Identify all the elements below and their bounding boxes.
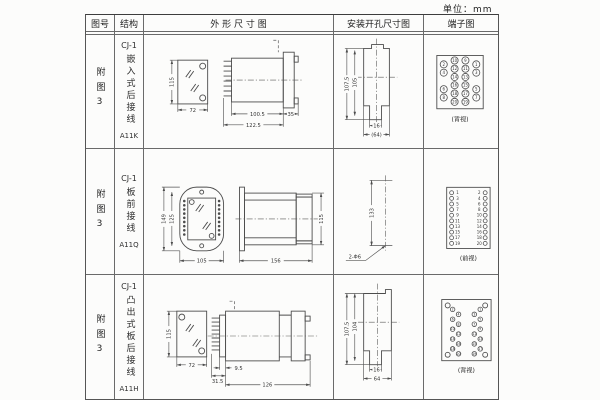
terminal-pin <box>450 241 454 245</box>
outline-drawing-a11q: 149 125 105 <box>144 149 333 275</box>
structure-cell-a11q: CJ-1 板前接线 A11Q <box>114 148 143 274</box>
structure-text-a11h: 凸出式板后接线 <box>125 295 134 379</box>
terminal-cell-a11h: 2468101214161820 135791113151719 (背视) <box>423 274 498 399</box>
front-view-a11q: 149 125 105 <box>161 187 224 265</box>
terminal-pin <box>483 190 487 194</box>
terminal-cell-a11q: 135791113151719 2468101214161820 (前视) <box>423 148 498 274</box>
terminal-circles-outer-left: 2468 <box>440 60 447 100</box>
terminal-cell-a11k: 2468 101214161820 91113151719 1357 (背视) <box>423 31 498 148</box>
terminal-pin-number: 12 <box>452 66 458 71</box>
hook-icon <box>273 40 278 52</box>
terminal-pin-number: 19 <box>463 99 469 104</box>
dim-side-depth1-a11k: 100.5 <box>250 111 265 117</box>
terminal-pin <box>483 235 487 239</box>
terminal-pin-number: 7 <box>473 322 475 326</box>
dim-front-h2-a11q: 125 <box>170 214 176 224</box>
terminal-pin <box>483 241 487 245</box>
terminal-pin-number: 2 <box>452 307 454 311</box>
install-cell-a11h: 107.5 104 16 64 <box>333 274 423 399</box>
terminal-pin-number: 13 <box>455 223 461 228</box>
fig-no-cell-a11h: 附图3 <box>86 274 114 399</box>
terminal-pin-number: 10 <box>451 327 455 331</box>
terminal-circles-left: 2468101214161820 <box>450 307 460 356</box>
dim-side-depth2-a11k: 122.5 <box>246 122 261 128</box>
manual-page: 单位：mm 图号 结构 外 形 尺 寸 图 安装开孔尺寸图 端子图 附图3 CJ… <box>0 0 600 400</box>
terminal-pin <box>450 207 454 211</box>
terminal-pin-number: 8 <box>478 207 481 212</box>
terminal-pin-number: 8 <box>458 322 460 326</box>
drawing-table: 图号 结构 外 形 尺 寸 图 安装开孔尺寸图 端子图 附图3 CJ-1 嵌入式… <box>85 14 499 400</box>
dim-front-height-a11k: 115 <box>170 77 176 87</box>
header-terminal: 端子图 <box>423 15 498 31</box>
dim-install-h1-a11k: 16 <box>373 123 380 129</box>
terminal-caption-a11q: (前视) <box>460 254 477 262</box>
terminal-pin-number: 18 <box>451 346 455 350</box>
dim-side-length-a11h: 126 <box>262 382 272 388</box>
terminal-pin-number: 13 <box>478 337 482 341</box>
structure-model-a11q: A11Q <box>119 241 138 249</box>
terminal-pin-number: 5 <box>479 317 481 321</box>
terminal-diagram-a11q: 135791113151719 2468101214161820 (前视) <box>424 149 498 275</box>
terminal-pin <box>483 213 487 217</box>
terminal-pin-number: 11 <box>455 218 461 223</box>
structure-cell-a11k: CJ-1 嵌入式后接线 A11K <box>114 31 143 148</box>
outline-cell-a11k: 115 72 100.5 <box>143 31 333 148</box>
terminal-pin-number: 9 <box>479 327 481 331</box>
terminal-pin-number: 13 <box>463 74 469 79</box>
terminal-pin-number: 6 <box>478 201 481 206</box>
dim-front-width-a11k: 72 <box>189 107 196 113</box>
terminal-pin <box>450 213 454 217</box>
structure-text-a11k: 嵌入式后接线 <box>125 54 134 126</box>
outline-drawing-a11k: 115 72 100.5 <box>144 32 333 149</box>
terminal-pin <box>450 190 454 194</box>
fig-no-a11q: 附图3 <box>94 189 107 235</box>
structure-text-a11q: 板前接线 <box>125 187 134 235</box>
terminal-pin-number: 3 <box>456 195 459 200</box>
fig-no-a11k: 附图3 <box>94 67 107 113</box>
dim-front-width-a11q: 105 <box>197 258 207 264</box>
glass-hatch-icon <box>186 324 194 332</box>
terminal-pin <box>483 202 487 206</box>
dim-side-length-a11q: 156 <box>271 258 281 264</box>
install-cell-a11k: 107.5 105 16 (64) <box>333 31 423 148</box>
hook-icon <box>230 301 235 311</box>
structure-cell-a11h: CJ-1 凸出式板后接线 A11H <box>114 274 143 399</box>
terminal-pin-number: 17 <box>455 235 461 240</box>
terminal-pin <box>450 224 454 228</box>
terminal-circles-right: 135791113151719 <box>472 307 482 356</box>
terminal-circles-right: 2468101214161820 <box>477 190 487 246</box>
install-drawing-a11q: 133 2-Φ6 <box>334 149 423 275</box>
terminal-pin-number: 5 <box>456 201 459 206</box>
terminal-pin-number: 1 <box>479 307 481 311</box>
dim-fin-depth-a11h: 9.5 <box>235 365 243 371</box>
dim-install-h1-a11h: 16 <box>373 367 380 373</box>
glass-hatch-icon <box>186 70 194 78</box>
glass-hatch-icon <box>191 84 199 92</box>
terminal-pin-number: 15 <box>463 82 469 87</box>
dim-front-height-a11h: 115 <box>167 329 173 339</box>
terminal-pin <box>483 207 487 211</box>
terminal-pin <box>450 235 454 239</box>
terminal-pin-number: 18 <box>477 235 483 240</box>
dim-front-width-a11h: 72 <box>188 362 195 368</box>
structure-prefix-a11q: CJ-1 <box>121 174 137 183</box>
terminal-pin-number: 4 <box>458 312 460 316</box>
front-view-a11k: 115 72 <box>168 60 207 114</box>
terminal-pin-number: 16 <box>477 229 483 234</box>
dim-install-v2-a11k: 105 <box>353 77 359 87</box>
terminal-circles-inner-right: 91113151719 <box>462 56 469 105</box>
structure-model-a11k: A11K <box>120 132 138 140</box>
structure-prefix-a11k: CJ-1 <box>121 41 137 50</box>
terminal-pin <box>483 218 487 222</box>
front-view-a11h: 115 72 <box>166 311 207 369</box>
structure-prefix-a11h: CJ-1 <box>121 282 137 291</box>
terminal-pin-number: 6 <box>452 317 454 321</box>
outline-cell-a11q: 149 125 105 <box>143 148 333 274</box>
terminal-pin <box>483 196 487 200</box>
terminal-pin-number: 11 <box>463 66 469 71</box>
terminal-pin-number: 10 <box>452 57 458 62</box>
terminal-circles-inner-left: 101214161820 <box>451 56 458 105</box>
terminal-pin-number: 14 <box>477 223 483 228</box>
install-drawing-a11h: 107.5 104 16 64 <box>334 275 423 400</box>
terminal-circles-outer-right: 1357 <box>473 60 480 100</box>
terminal-pin-number: 15 <box>455 229 461 234</box>
terminal-pin-number: 10 <box>477 212 483 217</box>
dim-install-v1-a11h: 107.5 <box>345 321 351 336</box>
terminal-pin <box>483 224 487 228</box>
terminal-pin-number: 20 <box>452 99 458 104</box>
fig-no-a11h: 附图3 <box>94 314 107 360</box>
terminal-pin-number: 11 <box>472 332 476 336</box>
terminal-pin-number: 12 <box>457 332 461 336</box>
terminal-pin <box>450 218 454 222</box>
structure-model-a11h: A11H <box>120 385 139 393</box>
terminal-pin-number: 7 <box>456 207 459 212</box>
terminal-pin-number: 14 <box>451 337 455 341</box>
fig-no-cell-a11k: 附图3 <box>86 31 114 148</box>
glass-hatch-icon <box>203 221 211 229</box>
terminal-diagram-a11k: 2468 101214161820 91113151719 1357 (背视) <box>424 32 498 149</box>
terminal-pin-number: 19 <box>455 240 461 245</box>
terminal-pin-number: 20 <box>477 240 483 245</box>
glass-hatch-icon <box>196 204 204 212</box>
header-install: 安装开孔尺寸图 <box>333 15 423 31</box>
dim-install-v1-a11k: 107.5 <box>345 76 351 91</box>
terminal-pin-number: 16 <box>457 342 461 346</box>
dim-install-h2-a11h: 64 <box>374 376 381 382</box>
terminal-pin-number: 19 <box>472 351 476 355</box>
terminal-pin-number: 1 <box>456 190 459 195</box>
outline-cell-a11h: 115 72 9 <box>143 274 333 399</box>
terminal-pin-number: 4 <box>478 195 481 200</box>
terminal-caption-a11h: (背视) <box>458 366 475 374</box>
side-view-a11q: 156 115 <box>236 187 325 265</box>
terminal-pin <box>450 196 454 200</box>
fig-no-cell-a11q: 附图3 <box>86 148 114 274</box>
terminal-pin-number: 17 <box>463 90 469 95</box>
header-structure: 结构 <box>114 15 143 31</box>
terminal-pin <box>483 230 487 234</box>
dim-install-v2-a11h: 104 <box>353 321 359 331</box>
dim-stud-depth-a11h: 31.5 <box>212 378 223 384</box>
dim-side-height-a11q: 115 <box>319 214 325 224</box>
install-cell-a11q: 133 2-Φ6 <box>333 148 423 274</box>
terminal-pin-number: 16 <box>452 82 458 87</box>
terminal-circles-left: 135791113151719 <box>450 190 461 246</box>
side-view-a11k: 100.5 122.5 35 <box>224 40 304 129</box>
terminal-pin-number: 18 <box>452 90 458 95</box>
dim-install-h2-a11k: (64) <box>371 132 382 138</box>
terminal-pin-number: 17 <box>478 346 482 350</box>
hole-label-a11q: 2-Φ6 <box>349 254 361 260</box>
glass-hatch-icon <box>193 338 201 346</box>
outline-drawing-a11h: 115 72 9 <box>144 275 333 400</box>
terminal-pin-number: 2 <box>478 190 481 195</box>
side-view-a11h: 9.5 31.5 126 <box>208 301 317 389</box>
terminal-pin-number: 20 <box>457 351 461 355</box>
dim-front-h1-a11q: 149 <box>162 214 168 224</box>
terminal-caption-a11k: (背视) <box>452 115 469 123</box>
terminal-pin <box>450 202 454 206</box>
terminal-pin-number: 9 <box>456 212 459 217</box>
terminal-pin-number: 3 <box>473 312 475 316</box>
dim-install-v1-a11q: 133 <box>369 208 375 218</box>
dim-flange-a11k: 35 <box>287 111 294 117</box>
terminal-pin <box>450 230 454 234</box>
terminal-pin-number: 15 <box>472 342 476 346</box>
terminal-pin-number: 14 <box>452 74 458 79</box>
terminal-diagram-a11h: 2468101214161820 135791113151719 (背视) <box>424 275 498 400</box>
header-outline: 外 形 尺 寸 图 <box>143 15 333 31</box>
install-drawing-a11k: 107.5 105 16 (64) <box>334 32 423 149</box>
header-fig-no: 图号 <box>86 15 114 31</box>
terminal-pin-number: 12 <box>477 218 483 223</box>
